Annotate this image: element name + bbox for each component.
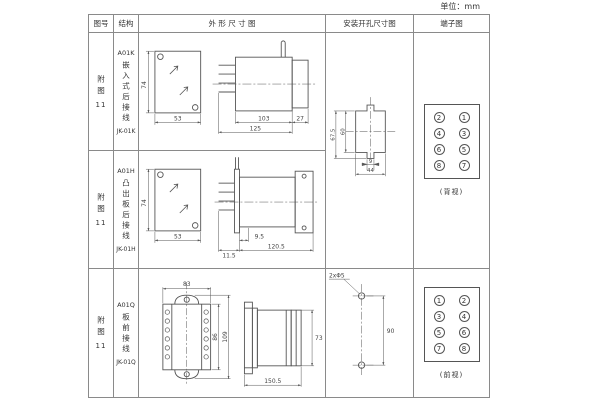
terminal-pin: 5 xyxy=(434,327,445,338)
outline-drawing-a01h: 74 53 9.5 11.5 120.5 xyxy=(139,151,325,268)
terminal-pin: 5 xyxy=(459,144,470,155)
terminal-pin: 4 xyxy=(459,311,470,322)
header-col-install: 安装开孔尺寸图 xyxy=(326,15,414,33)
structure-text: 板前接线 xyxy=(121,313,132,355)
install-cell-q: 90 2xΦ5 xyxy=(326,269,414,397)
type-code: JK-01H xyxy=(116,246,135,253)
terminal-pin: 6 xyxy=(459,327,470,338)
dim-label: 83 xyxy=(183,281,191,288)
outline-drawing-a01q: 83 86 109 150.5 73 xyxy=(139,270,325,396)
terminal-pin: 3 xyxy=(434,311,445,322)
terminal-block: 1 2 3 4 5 6 7 8 xyxy=(424,287,480,362)
fig-number: 11 xyxy=(96,219,107,227)
fig-label: 附图 xyxy=(96,316,107,339)
dim-label: 74 xyxy=(141,81,148,89)
fig-label: 附图 xyxy=(96,75,107,98)
dim-label: 67.5 xyxy=(330,129,336,141)
structure-text: 凸出板后接线 xyxy=(121,179,132,242)
dim-label: 53 xyxy=(174,115,182,122)
header-col-terminal: 端子图 xyxy=(414,15,489,33)
install-cell-k-h: 67.5 60 9 44 xyxy=(326,33,414,269)
dim-label: 9.5 xyxy=(255,233,265,240)
terminal-pin: 8 xyxy=(459,343,470,354)
terminal-pin: 7 xyxy=(434,343,445,354)
terminal-pin: 4 xyxy=(434,128,445,139)
type-code: JK-01K xyxy=(117,128,136,135)
model-label: A01K xyxy=(118,49,135,57)
outline-drawing-a01k: 74 53 103 27 125 xyxy=(139,33,325,150)
fig-number: 11 xyxy=(96,101,107,109)
header-col-structure: 结构 xyxy=(114,15,139,33)
terminal-pin: 2 xyxy=(459,295,470,306)
terminal-diagram-rear: 2 1 4 3 6 5 8 7 (背视) xyxy=(424,104,480,197)
dim-label: 73 xyxy=(315,335,323,342)
dim-label: 125 xyxy=(250,125,262,132)
row1-fig-cell: 附图 11 xyxy=(89,33,114,151)
install-cutout-drawing: 67.5 60 9 44 xyxy=(326,33,413,268)
terminal-pin: 8 xyxy=(434,160,445,171)
row3-outline-cell: 83 86 109 150.5 73 xyxy=(139,269,326,397)
terminal-pin: 6 xyxy=(434,144,445,155)
dim-label: 44 xyxy=(367,168,374,174)
dim-label: 74 xyxy=(141,199,148,207)
dim-label: 150.5 xyxy=(264,378,281,385)
row1-outline-cell: 74 53 103 27 125 xyxy=(139,33,326,151)
fig-label: 附图 xyxy=(96,193,107,216)
terminal-pin: 1 xyxy=(434,295,445,306)
terminal-diagram-front: 1 2 3 4 5 6 7 8 (前视) xyxy=(424,287,480,380)
view-caption: (前视) xyxy=(440,370,463,380)
dim-label: 60 xyxy=(340,128,346,135)
terminal-pin: 1 xyxy=(459,112,470,123)
terminal-cell-front: 1 2 3 4 5 6 7 8 (前视) xyxy=(414,269,489,397)
terminal-cell-rear: 2 1 4 3 6 5 8 7 (背视) xyxy=(414,33,489,269)
model-label: A01H xyxy=(117,167,135,175)
view-caption: (背视) xyxy=(440,187,463,197)
row2-outline-cell: 74 53 9.5 11.5 120.5 xyxy=(139,151,326,269)
terminal-block: 2 1 4 3 6 5 8 7 xyxy=(424,104,480,179)
dim-label: 109 xyxy=(222,331,229,343)
dim-label: 9 xyxy=(369,159,373,165)
row3-structure-cell: A01Q 板前接线 JK-01Q xyxy=(114,269,139,397)
install-holes-drawing: 90 2xΦ5 xyxy=(326,270,413,397)
row1-structure-cell: A01K 嵌入式后接线 JK-01K xyxy=(114,33,139,151)
dim-label: 27 xyxy=(296,115,304,122)
dim-label: 86 xyxy=(212,333,219,341)
row2-fig-cell: 附图 11 xyxy=(89,151,114,269)
type-code: JK-01Q xyxy=(116,359,136,366)
spec-table: 图号 结构 外 形 尺 寸 图 安装开孔尺寸图 端子图 附图 11 A01K 嵌… xyxy=(88,14,490,398)
row2-structure-cell: A01H 凸出板后接线 JK-01H xyxy=(114,151,139,269)
structure-text: 嵌入式后接线 xyxy=(121,61,132,124)
dim-label: 103 xyxy=(258,115,270,122)
dim-label: 120.5 xyxy=(268,243,285,250)
row3-fig-cell: 附图 11 xyxy=(89,269,114,397)
dim-label: 11.5 xyxy=(222,253,235,260)
terminal-pin: 7 xyxy=(459,160,470,171)
model-label: A01Q xyxy=(117,301,135,309)
fig-number: 11 xyxy=(96,342,107,350)
dim-label: 90 xyxy=(387,328,395,335)
unit-label: 单位：mm xyxy=(320,1,480,12)
terminal-pin: 2 xyxy=(434,112,445,123)
terminal-pin: 3 xyxy=(459,128,470,139)
dim-label: 53 xyxy=(174,233,182,240)
header-col-fig: 图号 xyxy=(89,15,114,33)
header-col-outline: 外 形 尺 寸 图 xyxy=(139,15,326,33)
hole-spec-label: 2xΦ5 xyxy=(329,272,345,279)
